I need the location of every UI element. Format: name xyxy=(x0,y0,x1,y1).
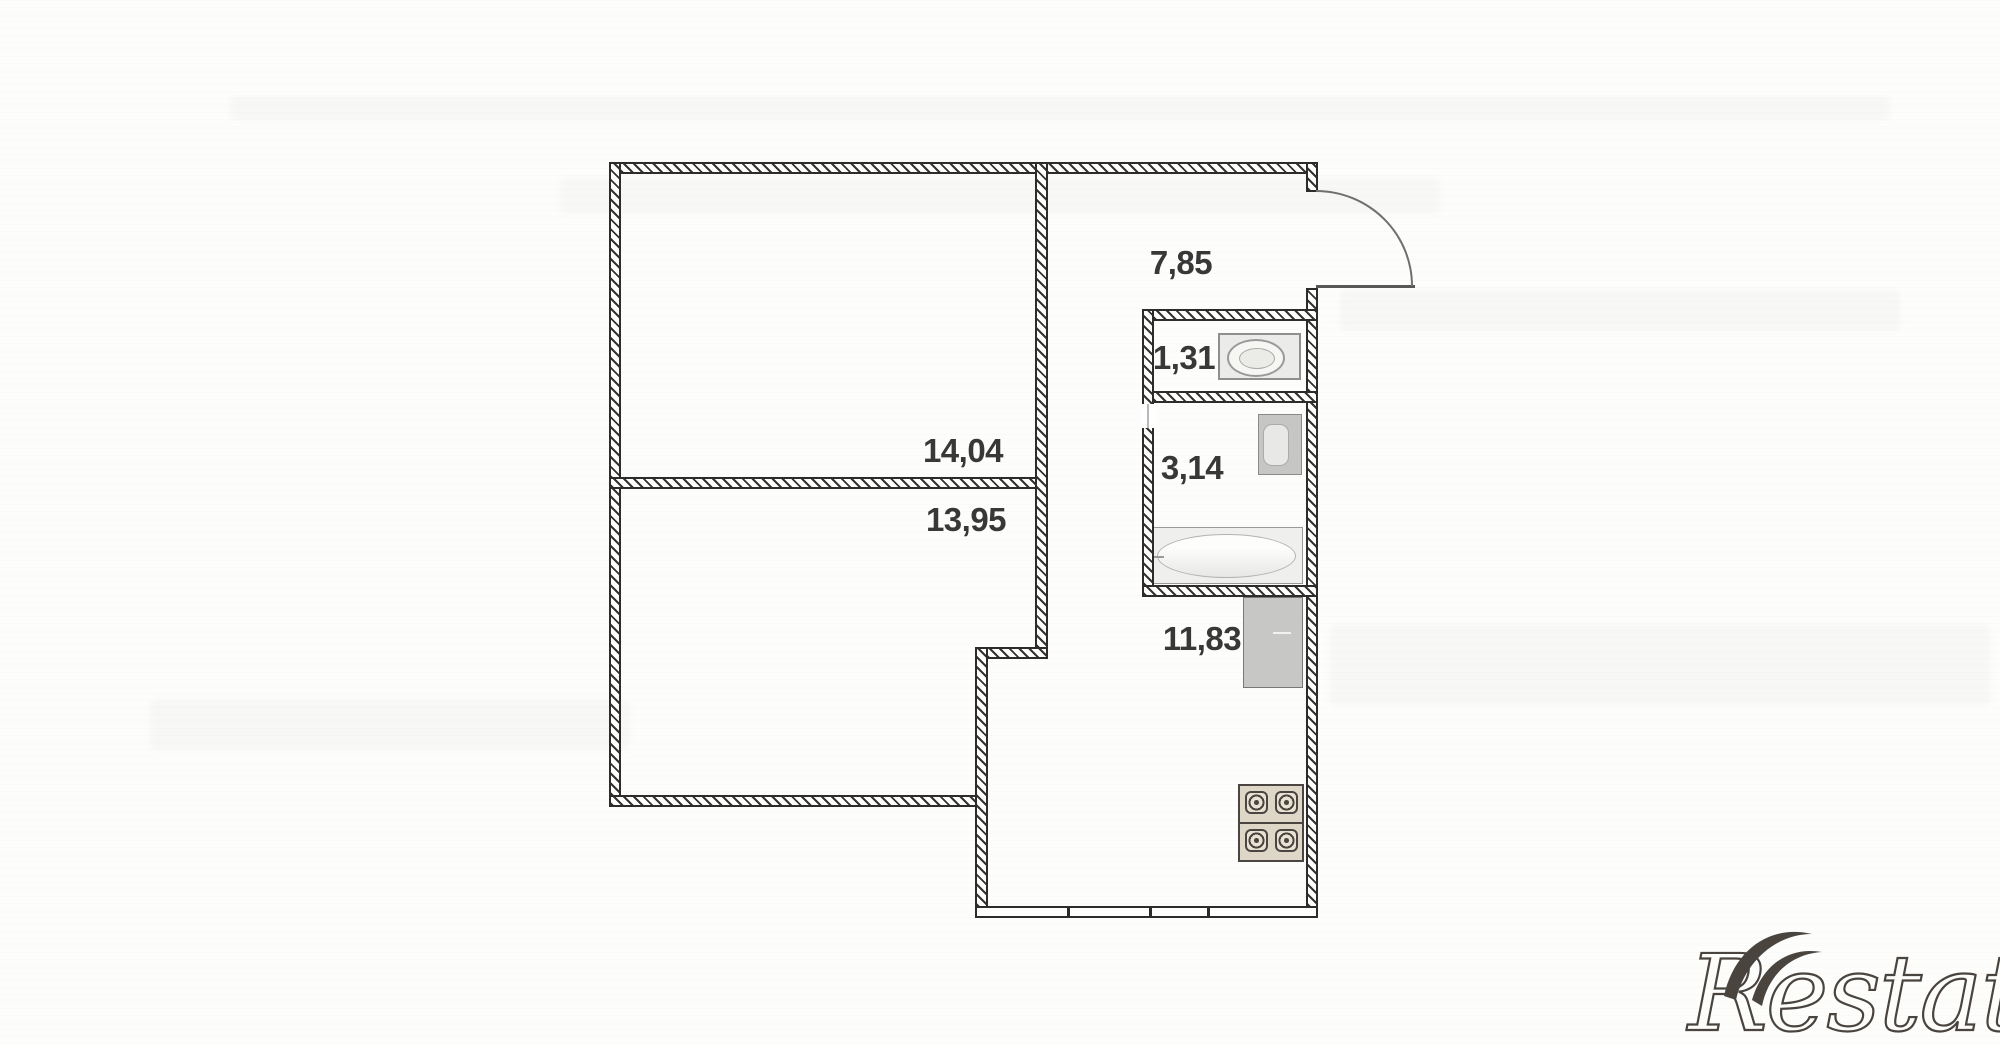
room-area-label-wc: 1,31 xyxy=(1153,339,1215,377)
room-area-label-room1: 14,04 xyxy=(923,432,1003,470)
room-area-label-hallway: 7,85 xyxy=(1150,244,1212,282)
scan-smudge xyxy=(150,700,630,750)
wall-kitchen-left xyxy=(975,647,988,918)
stove-icon xyxy=(1238,784,1304,862)
wall-room2-bottom xyxy=(609,795,988,807)
window-tick xyxy=(1207,908,1210,916)
stove-burner-icon xyxy=(1245,829,1268,852)
fridge-icon xyxy=(1243,597,1303,688)
room-area-label-room2: 13,95 xyxy=(926,501,1006,539)
wall-bottom-window xyxy=(975,906,1318,918)
sink-icon xyxy=(1258,414,1302,475)
wall-wc-top xyxy=(1142,309,1318,321)
wall-wc-bottom xyxy=(1142,391,1318,403)
wall-right-above-door xyxy=(1306,162,1318,192)
toilet-icon xyxy=(1218,333,1301,380)
room-area-label-bathroom: 3,14 xyxy=(1161,449,1223,487)
bathtub-basin xyxy=(1157,534,1296,578)
stove-burner-icon xyxy=(1275,791,1298,814)
watermark-text: Restate xyxy=(1686,932,2000,1044)
fridge-handle xyxy=(1273,632,1291,634)
wall-room-divider xyxy=(609,477,1048,489)
floor-plan-canvas: 7,85 1,31 3,14 14,04 13,95 11,83 Restate xyxy=(0,0,2000,1044)
window-tick xyxy=(1149,908,1152,916)
bathroom-door-panel xyxy=(1147,404,1149,428)
stove-burner-icon xyxy=(1245,791,1268,814)
scan-smudge xyxy=(1330,625,1990,705)
room-area-label-kitchen: 11,83 xyxy=(1163,620,1241,658)
window-tick xyxy=(1067,908,1070,916)
wall-top xyxy=(609,162,1318,174)
restate-watermark-logo: Restate xyxy=(1638,912,2000,1044)
stove-divider xyxy=(1240,822,1302,824)
bathtub-icon xyxy=(1147,527,1303,584)
stove-burner-icon xyxy=(1275,829,1298,852)
toilet-bowl-inner xyxy=(1239,348,1275,369)
scan-smudge xyxy=(1340,290,1900,330)
wall-bath-bottom xyxy=(1142,585,1318,597)
wall-corridor xyxy=(1035,162,1048,659)
wall-right xyxy=(1306,288,1318,918)
bathroom-door-opening xyxy=(1141,404,1156,428)
scan-smudge xyxy=(230,96,1890,120)
sink-basin xyxy=(1263,424,1289,466)
